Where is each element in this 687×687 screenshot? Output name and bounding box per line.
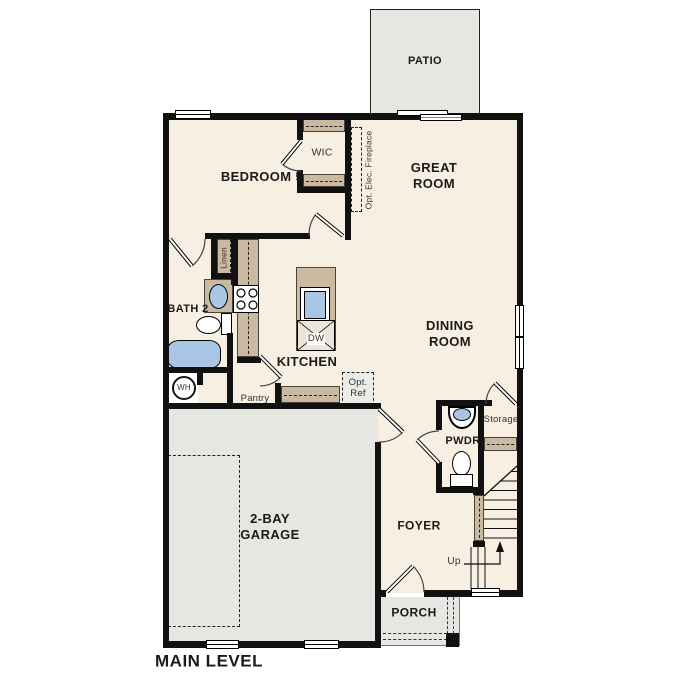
window <box>515 305 524 337</box>
wall <box>205 233 310 239</box>
annotation-water-heater: WH <box>177 383 191 393</box>
room-label-garage: 2-BAY GARAGE <box>240 511 299 544</box>
floor-plan: PATIO BEDROOM 5 WIC GREAT ROOM BATH 2 KI… <box>0 0 687 687</box>
window <box>420 114 462 121</box>
wic-shelf <box>303 174 345 187</box>
annotation-dishwasher: DW <box>307 333 325 345</box>
plan-title: MAIN LEVEL <box>155 650 263 671</box>
range-stove <box>233 285 259 313</box>
staircase <box>484 452 517 547</box>
wall <box>473 489 485 495</box>
room-label-wic: WIC <box>311 146 332 159</box>
room-label-bedroom5: BEDROOM 5 <box>221 169 303 185</box>
room-label-patio: PATIO <box>408 55 442 69</box>
bath2-sink-basin <box>209 284 228 309</box>
bath2-toilet-tank <box>221 313 232 335</box>
wall <box>197 373 203 385</box>
pwdr-toilet-bowl <box>452 451 471 476</box>
window <box>206 640 239 649</box>
wall <box>163 113 169 648</box>
porch-dashed-line <box>383 633 447 634</box>
room-label-storage: Storage <box>484 414 519 426</box>
stair-railing <box>474 495 484 541</box>
wall <box>297 187 351 193</box>
porch-dashed-line <box>383 639 447 640</box>
porch-dashed-line <box>447 597 448 634</box>
pwdr-sink-basin <box>453 408 471 421</box>
wall <box>163 113 523 120</box>
fireplace-dashed-outline <box>351 127 362 212</box>
room-label-foyer: FOYER <box>397 519 440 534</box>
pwdr-toilet-tank <box>450 474 473 487</box>
annotation-fireplace: Opt. Elec. Fireplace <box>364 131 375 210</box>
wall <box>473 541 485 547</box>
wall <box>237 357 261 363</box>
wall <box>275 383 281 409</box>
wic-shelf <box>303 119 345 132</box>
porch-dashed-line <box>453 597 454 634</box>
wall <box>231 233 238 285</box>
room-label-kitchen: KITCHEN <box>277 354 338 370</box>
wall <box>375 442 381 648</box>
window <box>515 337 524 369</box>
room-label-bath2: BATH 2 <box>167 303 208 317</box>
bath2-toilet-bowl <box>196 316 221 334</box>
annotation-opt-ref: Opt. Ref <box>349 378 368 400</box>
storage-shelf <box>484 437 517 451</box>
porch-post <box>446 633 459 647</box>
annotation-pantry: Pantry <box>241 393 270 405</box>
wall <box>345 113 351 240</box>
wall <box>436 403 442 430</box>
wall <box>227 333 233 409</box>
wall <box>297 113 303 140</box>
room-label-great-room: GREAT ROOM <box>411 160 458 193</box>
room-label-dining-room: DINING ROOM <box>426 318 474 351</box>
wall <box>211 273 233 279</box>
window <box>471 588 500 597</box>
bathtub <box>167 340 221 369</box>
annotation-up: Up <box>447 556 460 569</box>
wall <box>163 403 381 409</box>
room-label-pwdr: PWDR <box>445 435 480 449</box>
island-sink-basin <box>304 291 326 319</box>
annotation-linen: Linen <box>219 247 230 269</box>
wall <box>163 641 381 648</box>
window <box>304 640 339 649</box>
window <box>175 110 211 119</box>
pantry-wall-counter <box>281 386 340 403</box>
room-label-porch: PORCH <box>391 606 436 621</box>
garage-storage-dashed-zone <box>168 455 240 627</box>
